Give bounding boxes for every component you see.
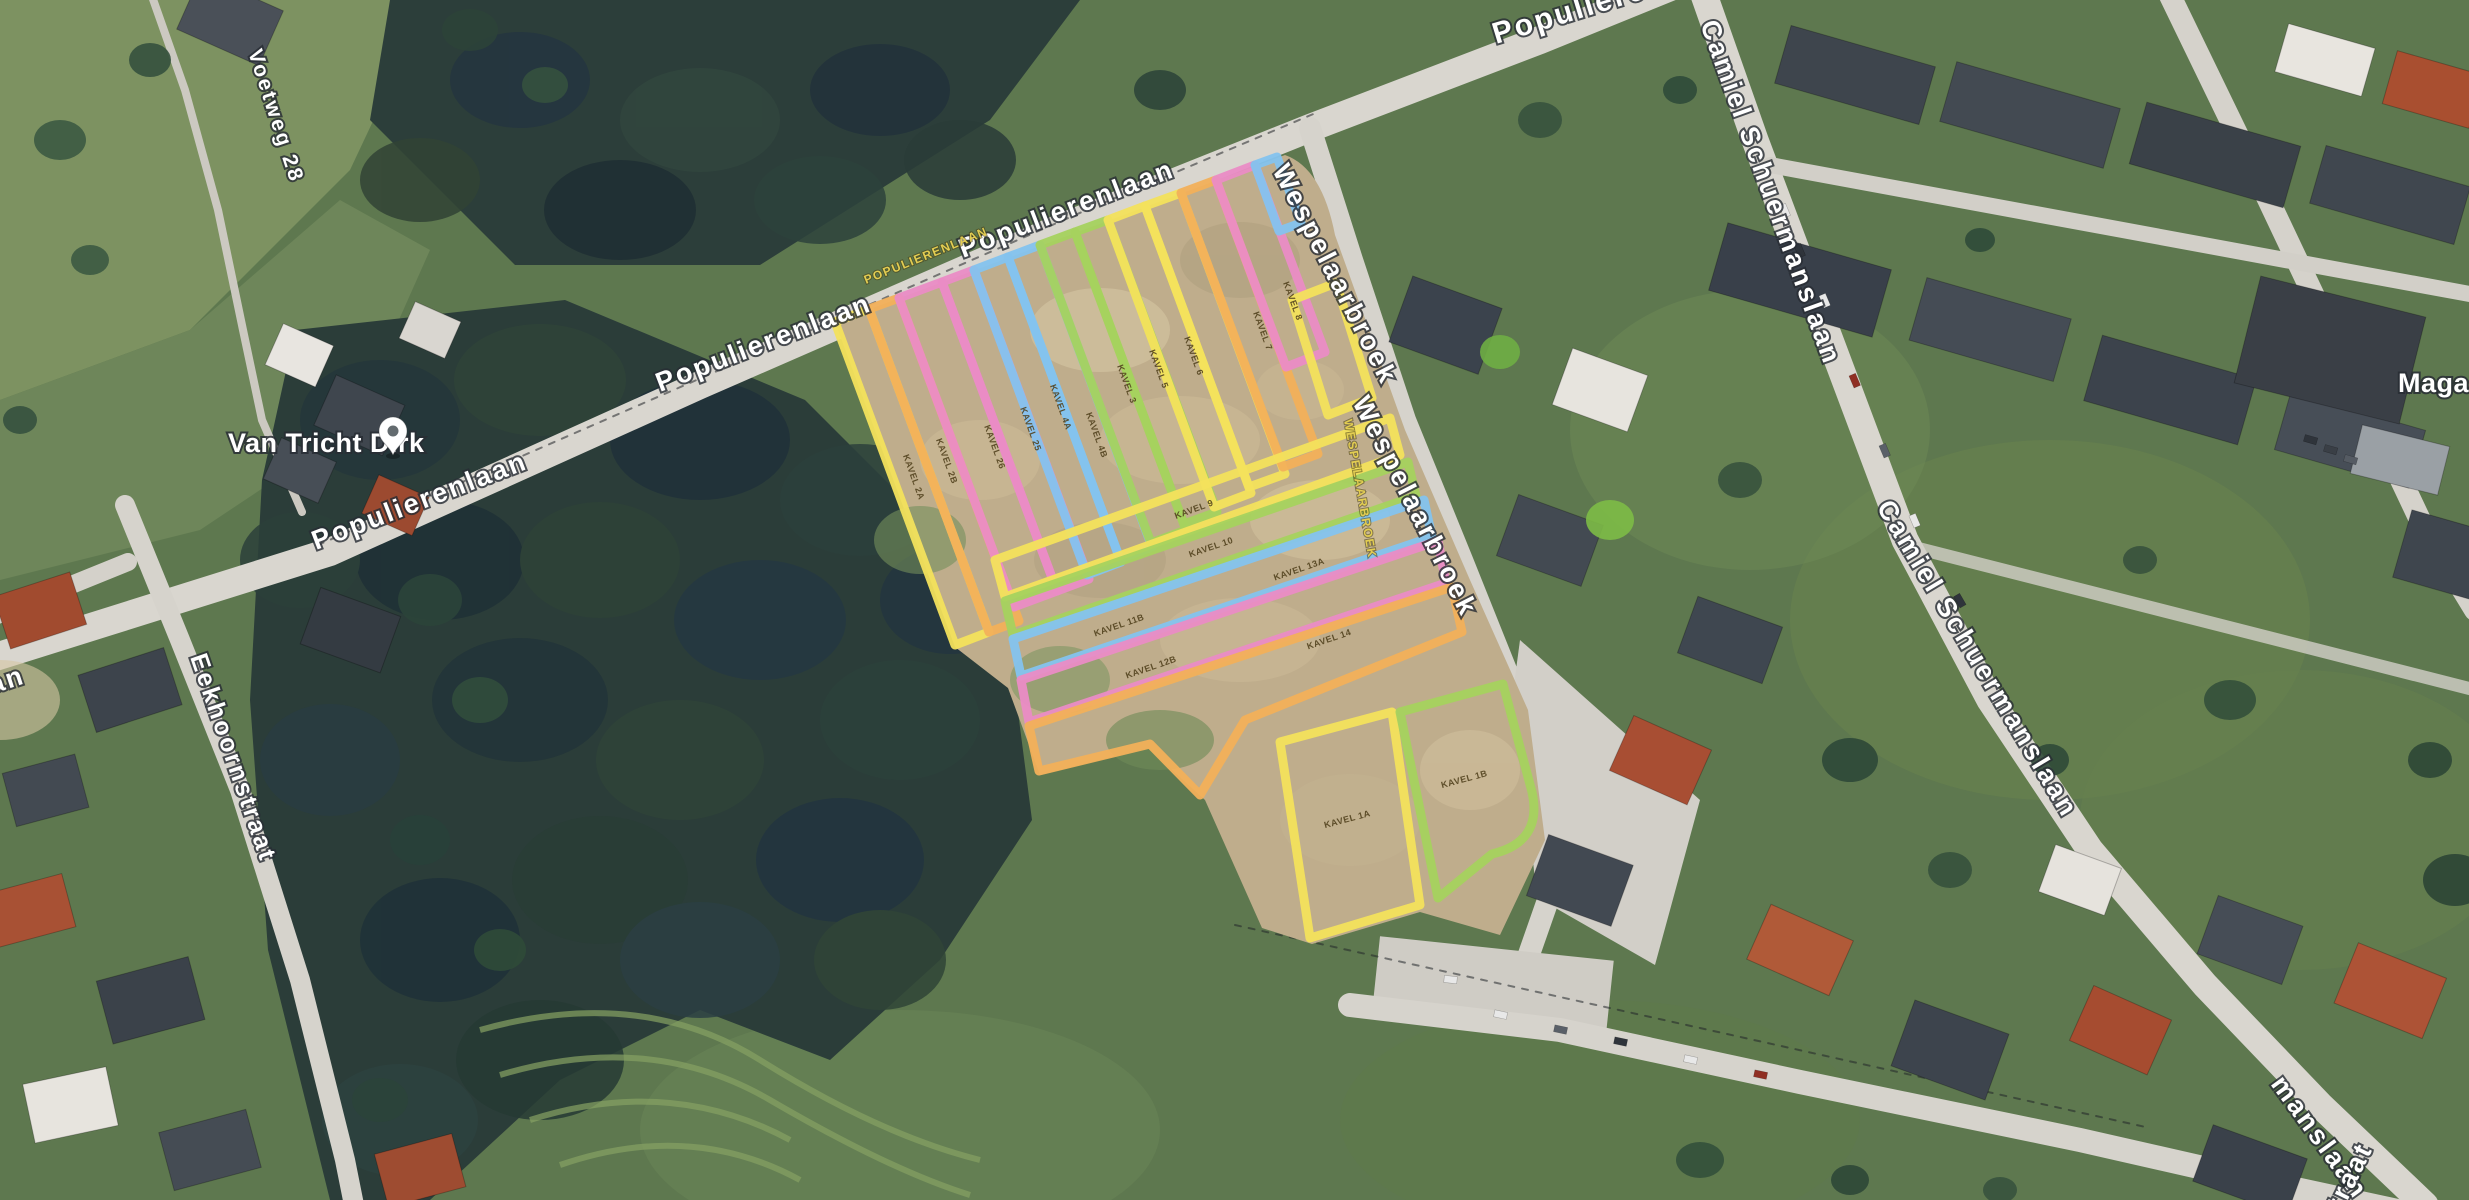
- satellite-map[interactable]: KAVEL 2A KAVEL 2B KAVEL 26 KAVEL 25 KAVE…: [0, 0, 2469, 1200]
- poi-label-magasin[interactable]: Magasin: [2398, 368, 2469, 398]
